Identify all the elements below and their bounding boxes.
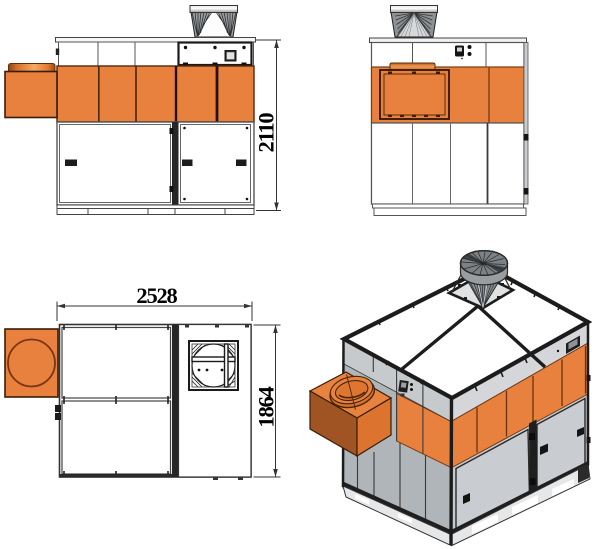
svg-text:1864: 1864 (254, 386, 279, 427)
svg-text:2110: 2110 (254, 113, 279, 153)
svg-text:2528: 2528 (136, 283, 177, 308)
